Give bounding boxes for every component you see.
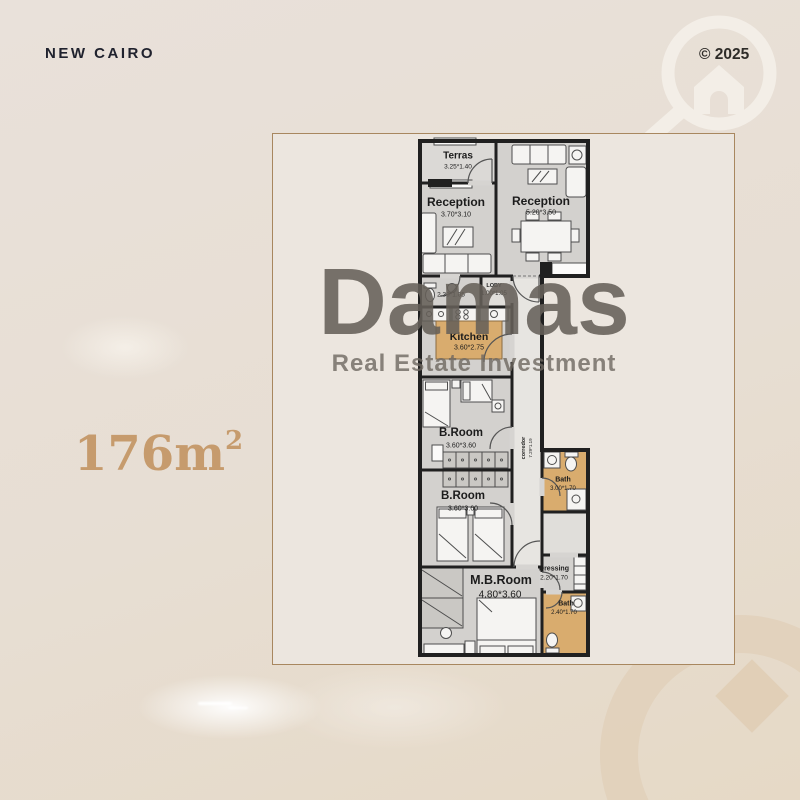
room-dims-bath-2: 2.40*1.70 [551, 610, 577, 616]
area-label: 176m2 [74, 430, 243, 478]
room-dims-bedroom-1: 3.60*3.60 [446, 443, 476, 450]
location-title: NEW CAIRO [45, 45, 155, 62]
room-label-bath-2: Bath [558, 601, 574, 608]
brand-watermark: Damas Real Estate Investment [318, 262, 630, 378]
room-label-reception-left: Reception [427, 195, 485, 209]
room-dims-terras: 3.25*1.40 [444, 164, 472, 171]
light-flare [60, 315, 190, 380]
room-label-corridor: corredor 7.29*1.19 [521, 437, 533, 460]
room-label-dressing: Dressing [539, 566, 569, 573]
room-label-terras: Terras [443, 151, 473, 162]
room-label-reception-right: Reception [512, 194, 570, 208]
room-label-bath-1: Bath [555, 477, 571, 484]
room-dims-bath-1: 3.00*1.70 [550, 486, 576, 492]
room-dims-dressing: 2.20*1.70 [540, 575, 568, 582]
room-label-master-bedroom: M.B.Room [470, 573, 532, 587]
area-superscript: 2 [225, 426, 243, 456]
brand-tagline: Real Estate Investment [318, 350, 630, 378]
brand-name: Damas [318, 262, 630, 343]
poster: NEW CAIRO © 2025 [0, 0, 800, 800]
light-streak [198, 702, 232, 705]
room-label-bedroom-1: B.Room [439, 427, 483, 439]
room-dims-bedroom-2: 3.60*3.60 [448, 506, 478, 513]
room-dims-reception-right: 5.20*3.50 [526, 210, 556, 217]
room-label-bedroom-2: B.Room [441, 490, 485, 502]
room-dims-master-bedroom: 4.80*3.60 [479, 590, 522, 601]
light-streak [228, 707, 248, 709]
light-flare [280, 665, 510, 750]
room-dims-reception-left: 3.70*3.10 [441, 212, 471, 219]
area-value: 176m [74, 426, 225, 482]
